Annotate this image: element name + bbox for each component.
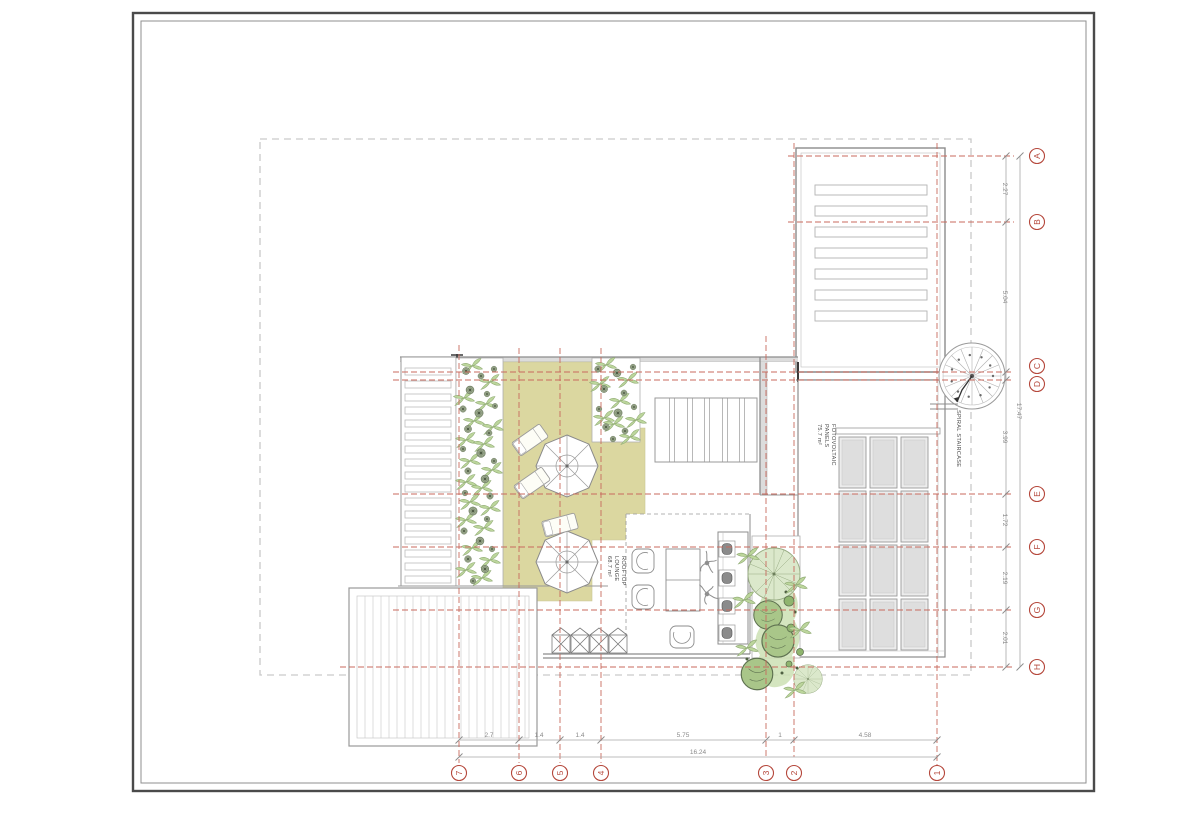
svg-text:5: 5 [555,770,565,775]
lounge-label-area: 68.7 m² [606,556,612,577]
svg-text:D: D [1032,381,1042,387]
bar-stool-3 [719,598,735,614]
skylight [655,398,757,462]
pv-label-line2: PANELS [823,424,829,447]
dim-bottom-32: 1 [778,732,782,739]
axis-bubble-3: 3 [759,766,774,781]
axis-bubble-g: G [1030,603,1045,618]
spiral-staircase-label: SPIRAL STAIRCASE [955,410,961,467]
louvre-strip [401,354,463,586]
axis-bubble-1: 1 [930,766,945,781]
axis-bubble-2: 2 [787,766,802,781]
parasol-north [536,435,598,497]
parasol-south [536,531,598,593]
bar-stool-1 [719,541,735,557]
axis-bubbles-right: A B C D E F G H [1030,149,1045,675]
north-wing-louvre-roof [796,148,945,382]
svg-text:F: F [1032,544,1042,549]
axis-bubble-b: B [1030,215,1045,230]
dim-right-gh: 2.01 [1001,632,1008,645]
armchair-2 [632,585,654,609]
pv-label-line1: FOTOVOLTAIC [830,424,836,466]
lounge-label-line2: LOUNGE [613,556,619,581]
svg-text:G: G [1032,607,1042,614]
axis-bubble-5: 5 [553,766,568,781]
axis-bubble-a: A [1030,149,1045,164]
folding-deck-chairs [552,628,627,653]
axis-bubble-4: 4 [594,766,609,781]
dim-bottom-76: 2.7 [484,732,493,739]
axis-bubble-f: F [1030,540,1045,555]
svg-text:3: 3 [761,770,771,775]
dim-bottom-65: 1.4 [534,732,543,739]
coffee-table [666,549,700,611]
svg-text:7: 7 [454,770,464,775]
svg-text:2: 2 [789,770,799,775]
axis-bubble-d: D [1030,377,1045,392]
dim-right-ef: 1.72 [1001,514,1008,527]
dim-right-fg: 2.19 [1001,572,1008,585]
drawing-sheet: FOTOVOLTAIC PANELS 75.7 m² SPIRAL STAIRC… [0,0,1200,825]
armchair-3 [670,626,694,648]
dim-bottom-43: 5.75 [677,732,690,739]
shrub-3 [741,658,773,690]
svg-text:4: 4 [596,770,606,775]
dim-right-total: 17.47 [1015,403,1022,420]
dim-right-de: 3.99 [1001,431,1008,444]
dim-bottom-total: 16.24 [690,749,707,756]
svg-text:C: C [1032,363,1042,369]
dim-right-bc: 5.04 [1001,291,1008,304]
dim-bottom-21: 4.58 [859,732,872,739]
pv-panels-roof: FOTOVOLTAIC PANELS 75.7 m² [798,380,945,657]
tree-large [748,548,800,600]
axis-bubble-c: C [1030,359,1045,374]
svg-text:H: H [1032,664,1042,670]
dim-bottom-54: 1.4 [575,732,584,739]
rooftop-plan-drawing: FOTOVOLTAIC PANELS 75.7 m² SPIRAL STAIRC… [0,0,1200,825]
dimension-chain-right: 2.27 5.04 3.99 1.72 2.19 2.01 17.47 [1001,153,1024,671]
svg-text:B: B [1032,219,1042,225]
bar-stool-2 [719,570,735,586]
axis-bubble-h: H [1030,660,1045,675]
axis-bubble-7: 7 [452,766,467,781]
axis-bubble-e: E [1030,487,1045,502]
armchair-1 [632,549,654,573]
lounge-label: ROOFTOP LOUNGE 68.7 m² [606,556,626,586]
west-planter [454,358,504,586]
east-planter [590,358,647,445]
spiral-staircase [939,343,1005,409]
svg-text:6: 6 [514,770,524,775]
bar-stool-4 [719,625,735,641]
svg-text:1: 1 [932,770,942,775]
dim-right-ab: 2.27 [1001,183,1008,196]
axis-bubbles-bottom: 7 6 5 4 3 2 1 [452,766,945,781]
axis-bubble-6: 6 [512,766,527,781]
pv-label-area: 75.7 m² [816,424,822,445]
lounge-label-line1: ROOFTOP [620,556,626,586]
svg-text:E: E [1032,491,1042,497]
svg-text:A: A [1032,153,1042,159]
